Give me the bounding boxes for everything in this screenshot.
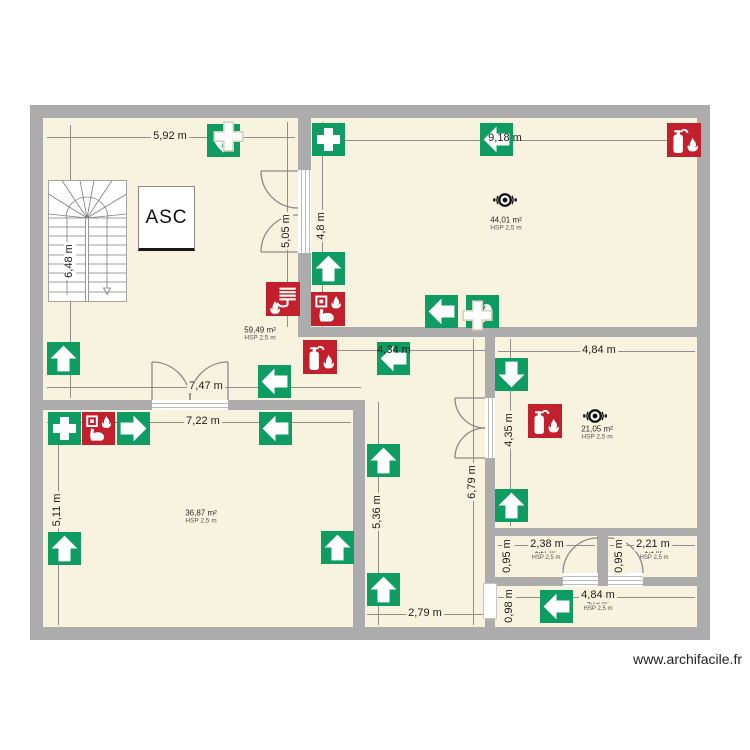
exit-arrow-up-icon[interactable] [48,532,81,565]
dimension-label: 4,8 m [316,210,328,242]
door-threshold [608,573,643,587]
manual-call-point-icon[interactable] [82,412,115,445]
wall-outer-right [697,118,710,627]
dimension-label: 4,84 m [579,590,617,602]
fire-extinguisher-icon[interactable] [667,123,701,157]
wall-h2-left [43,400,152,410]
dimension-label: 7,47 m [187,381,225,393]
watermark: www.archifacile.fr [633,651,742,667]
room-area: 21,05 m² [581,425,613,434]
dimension-label: 0,98 m [504,587,516,625]
exit-arrow-left-icon[interactable] [425,295,458,328]
room-hsp: HSP 2,5 m [584,606,613,613]
wall-opening [483,583,497,619]
exit-arrow-up-icon[interactable] [367,444,400,477]
first-aid-cross-icon[interactable] [48,412,81,445]
exit-arrow-up-icon[interactable] [495,489,528,522]
room-label-bottom-left: 36,87 m² HSP 2,5 m [185,509,217,526]
exit-arrow-left-icon[interactable] [258,365,291,398]
room-area: 44,01 m² [490,216,522,225]
room-hsp: HSP 2,5 m [185,518,217,525]
door-threshold [298,170,311,253]
dimension-label: 2,38 m [528,539,566,551]
first-aid-cross-icon[interactable] [312,123,345,156]
wall-h2-right [228,400,353,410]
dimension-label: 5,92 m [151,131,189,143]
alarm-sounder-icon[interactable] [492,191,518,209]
manual-call-point-icon[interactable] [311,292,345,326]
alarm-sounder-icon[interactable] [582,407,608,425]
fire-extinguisher-icon[interactable] [303,340,337,374]
wall-v2 [353,400,365,627]
exit-arrow-up-icon[interactable] [312,252,345,285]
exit-arrow-up-icon[interactable] [47,342,80,375]
exit-arrow-up-icon[interactable] [321,531,354,564]
dimension-label: 4,35 m [504,411,516,449]
elevator-label: ASC [145,207,187,229]
dimension-label: 7,22 m [184,416,222,428]
wall-outer-left [30,118,43,627]
dimension-label: 6,48 m [64,242,76,280]
dimension-label: 5,11 m [52,492,64,529]
exit-arrow-up-icon[interactable] [367,573,400,606]
dimension-label: 4,84 m [580,345,618,357]
room-hsp: HSP 2,5 m [532,555,561,562]
staircase[interactable] [49,181,127,302]
exit-arrow-left-icon[interactable] [259,412,292,445]
elevator-box[interactable]: ASC [138,186,195,251]
room-label-hall: 59,49 m² HSP 2,5 m [244,326,276,343]
wall-v4 [597,536,608,577]
room-area: 59,49 m² [244,326,276,335]
room-label-top-right: 44,01 m² HSP 2,5 m [490,216,522,233]
room-hsp: HSP 2,5 m [244,335,276,342]
wall-h3 [485,528,697,536]
defibrillator-icon[interactable] [466,295,499,328]
exit-arrow-left-icon[interactable] [540,590,573,623]
dimension-label: 5,05 m [281,212,293,250]
room-hsp: HSP 2,5 m [640,555,669,562]
floor-plan-canvas: ASC 59,49 m² HSP 2,5 m 44,01 m² HSP 2,5 … [0,0,750,750]
dimension-label: 2,79 m [406,608,444,620]
door-threshold [563,573,598,587]
dimension-label: 6,79 m [467,463,479,501]
wall-v3-lower [485,618,495,627]
door-threshold [485,398,495,458]
room-area: 36,87 m² [185,509,217,518]
door-threshold [152,400,228,410]
dimension-label: 0,95 m [502,537,514,575]
dimension-label: 4,34 m [375,345,413,357]
fire-extinguisher-icon[interactable] [528,404,562,438]
wall-outer-bottom [30,627,710,640]
exit-arrow-down-icon[interactable] [495,358,528,391]
exit-arrow-right-icon[interactable] [117,412,150,445]
fire-hose-reel-icon[interactable] [266,282,300,316]
wall-v3-mid [485,458,495,583]
wall-h1 [311,327,697,337]
wall-v1-upper [298,118,311,170]
dimension-label: 9,18 m [486,133,524,145]
room-hsp: HSP 2,5 m [581,434,613,441]
wall-v3-upper [485,337,495,398]
dimension-label: 5,36 m [372,493,384,531]
room-label-mid-right: 21,05 m² HSP 2,5 m [581,425,613,442]
wall-outer-top [30,105,710,118]
dimension-label: 0,95 m [614,537,626,575]
room-hsp: HSP 2,5 m [490,225,522,232]
defibrillator-icon[interactable] [207,124,240,157]
dimension-label: 2,21 m [634,539,672,551]
